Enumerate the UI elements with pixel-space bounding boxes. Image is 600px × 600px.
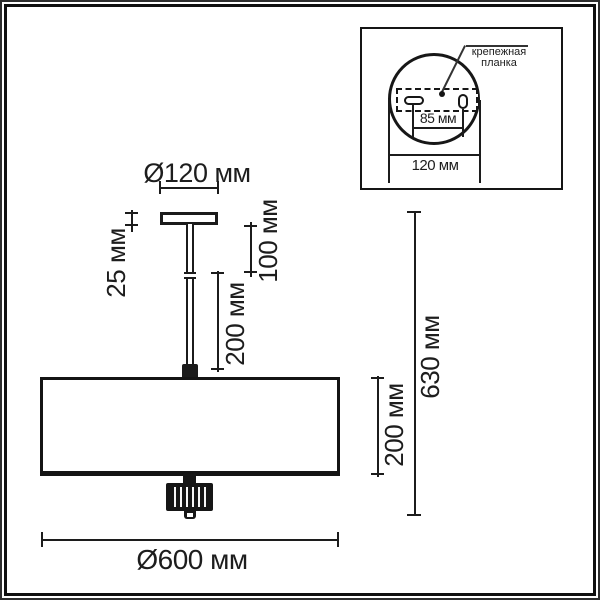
dim-label-total-height: 630 мм <box>416 311 444 403</box>
dim-line <box>42 539 338 541</box>
bracket-keyhole-slot <box>404 96 424 105</box>
dim-extension <box>388 100 390 183</box>
finial-ribbed-knob <box>166 483 213 511</box>
rod-coupling <box>184 272 196 279</box>
dim-tick <box>125 212 138 214</box>
dim-extension <box>479 100 481 183</box>
dim-tick <box>407 514 421 516</box>
hanger-rod <box>186 224 194 366</box>
dim-line <box>413 127 463 129</box>
bracket-label-line2: планка <box>458 58 540 69</box>
bracket-label-line1: крепежная <box>458 47 540 58</box>
dim-label-rod-lower: 200 мм <box>222 278 248 370</box>
dim-tick <box>41 532 43 547</box>
dim-label-canopy-height: 25 мм <box>103 225 129 301</box>
dim-label-shade-diameter: Ø600 мм <box>92 546 292 574</box>
dim-label-shade-height: 200 мм <box>381 379 407 471</box>
dim-label-plate-diameter: 120 мм <box>391 159 479 173</box>
dim-tick <box>407 211 421 213</box>
bracket-screw-slot <box>458 94 468 109</box>
dim-label-canopy-diameter: Ø120 мм <box>137 159 257 187</box>
finial-ribs <box>170 487 209 507</box>
leader-dot <box>439 91 445 97</box>
dim-label-slot-spacing: 85 мм <box>407 111 469 125</box>
dim-tick <box>337 532 339 547</box>
dim-label-rod-upper: 100 мм <box>255 197 281 285</box>
dim-line <box>389 154 480 156</box>
lamp-shade-drum <box>40 377 340 476</box>
bracket-label: крепежная планка <box>458 47 540 68</box>
dim-tick <box>211 272 224 274</box>
finial-end-cap-notch <box>187 513 193 517</box>
technical-drawing-canvas: Ø120 мм 25 мм 100 мм 200 мм 200 мм 630 м… <box>0 0 600 600</box>
finial-end-cap <box>184 511 196 519</box>
dim-tick <box>371 473 384 475</box>
